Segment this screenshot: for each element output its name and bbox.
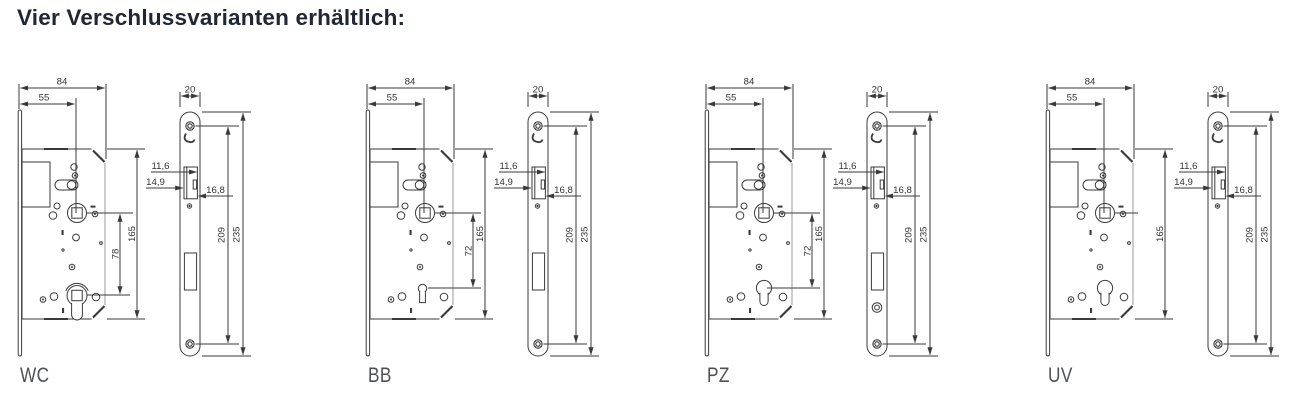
variant-label-wc: WC xyxy=(20,363,49,388)
dim-backset: 55 xyxy=(1067,93,1078,104)
page-title: Vier Verschlussvarianten erhältlich: xyxy=(17,5,405,31)
variant-label-bb: BB xyxy=(368,363,392,388)
dim-latch-top: 11,6 xyxy=(500,161,518,172)
dim-latch-top: 11,6 xyxy=(839,161,857,172)
dim-latch-mid: 14,9 xyxy=(1174,177,1193,188)
lock-diagram-bb: 84 55 165 72 20 11,6 14,9 16,8 209 235 xyxy=(330,62,660,362)
deadbolt-cutout xyxy=(871,253,883,290)
dim-backset: 55 xyxy=(726,93,737,104)
wc-turn-follower xyxy=(66,283,88,320)
variant-label-pz: PZ xyxy=(707,363,730,388)
dim-latch-side: 16,8 xyxy=(1234,185,1253,196)
dim-follower-distance-label: 72 xyxy=(464,246,475,257)
dim-faceplate-width: 20 xyxy=(872,85,883,96)
dim-faceplate-height: 235 xyxy=(1260,226,1271,242)
dim-latch-mid: 14,9 xyxy=(494,177,513,188)
dim-screw-spacing: 209 xyxy=(565,227,576,243)
lock-drawing xyxy=(18,84,251,356)
dim-body-height: 165 xyxy=(475,226,486,242)
profile-cylinder-hole xyxy=(756,280,771,305)
variant-wc: 84 55 165 78 20 11,6 14,9 16,8 209 235 W… xyxy=(0,62,330,400)
dim-screw-spacing: 209 xyxy=(904,227,915,243)
lock-drawing xyxy=(1046,84,1279,356)
dim-body-height: 165 xyxy=(814,226,825,242)
dim-faceplate-height: 235 xyxy=(232,226,243,242)
dim-faceplate-height: 235 xyxy=(580,226,591,242)
dim-latch-side: 16,8 xyxy=(554,185,573,196)
dim-latch-mid: 14,9 xyxy=(833,177,852,188)
dim-backset: 55 xyxy=(387,93,398,104)
lock-drawing xyxy=(705,84,938,356)
variant-pz: 84 55 165 72 20 11,6 14,9 16,8 209 235 P… xyxy=(660,62,990,400)
variant-bb: 84 55 165 72 20 11,6 14,9 16,8 209 235 B… xyxy=(330,62,660,400)
deadbolt-cutout xyxy=(184,253,196,290)
dim-follower-distance-label: 72 xyxy=(803,246,814,257)
lock-diagram-wc: 84 55 165 78 20 11,6 14,9 16,8 209 235 xyxy=(0,62,330,362)
dim-screw-spacing: 209 xyxy=(1245,227,1256,243)
faceplate-cylinder-screw-hole xyxy=(872,303,882,313)
dim-body-width: 84 xyxy=(405,77,416,88)
dim-body-width: 84 xyxy=(57,77,68,88)
lock-drawing xyxy=(366,84,599,356)
dim-body-width: 84 xyxy=(744,77,755,88)
variant-label-uv: UV xyxy=(1048,363,1073,388)
dim-body-height: 165 xyxy=(127,226,138,242)
dim-body-height: 165 xyxy=(1155,226,1166,242)
dim-body-width: 84 xyxy=(1085,77,1096,88)
dim-latch-side: 16,8 xyxy=(206,185,225,196)
dim-latch-top: 11,6 xyxy=(152,161,170,172)
dim-screw-spacing: 209 xyxy=(217,227,228,243)
dim-follower-distance-label: 78 xyxy=(111,249,122,260)
lock-diagram-pz: 84 55 165 72 20 11,6 14,9 16,8 209 235 xyxy=(660,62,990,362)
deadbolt-cutout xyxy=(532,253,544,290)
profile-cylinder-hole xyxy=(1097,280,1112,305)
lock-diagram-uv: 84 55 165 20 11,6 14,9 16,8 209 235 xyxy=(980,62,1298,362)
bit-keyhole xyxy=(418,284,426,302)
dim-faceplate-width: 20 xyxy=(1213,85,1224,96)
dim-latch-mid: 14,9 xyxy=(146,177,165,188)
dim-backset: 55 xyxy=(39,93,50,104)
page: { "title": "Vier Verschlussvarianten erh… xyxy=(0,0,1298,400)
variant-uv: 84 55 165 20 11,6 14,9 16,8 209 235 UV xyxy=(980,62,1298,400)
dim-faceplate-height: 235 xyxy=(919,226,930,242)
dim-faceplate-width: 20 xyxy=(185,85,196,96)
dim-latch-side: 16,8 xyxy=(893,185,912,196)
dim-faceplate-width: 20 xyxy=(533,85,544,96)
dim-latch-top: 11,6 xyxy=(1180,161,1198,172)
